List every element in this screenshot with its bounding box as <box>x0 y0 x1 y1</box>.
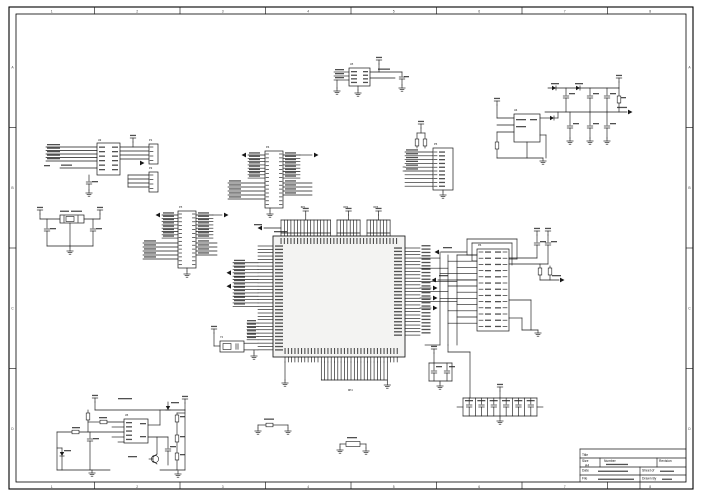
label-mark <box>247 337 256 338</box>
label-mark <box>394 294 402 295</box>
label-mark <box>275 292 283 293</box>
label-mark <box>234 293 245 294</box>
label-mark <box>422 322 431 323</box>
label-mark <box>406 161 418 162</box>
label-mark <box>330 238 331 244</box>
aux-connector-section: P5 <box>403 121 453 198</box>
offpage-arrow-icon <box>433 286 438 291</box>
label-mark <box>390 348 391 354</box>
label-mark <box>198 252 209 253</box>
label-mark <box>294 238 295 244</box>
label-mark <box>406 153 418 154</box>
label-mark <box>439 170 445 171</box>
interface-section: U2P1P2 <box>44 135 158 196</box>
label-mark <box>406 165 418 166</box>
label-mark <box>335 73 344 74</box>
label-mark <box>285 180 296 181</box>
label-mark <box>71 211 82 212</box>
label-mark <box>394 271 402 272</box>
label-mark <box>485 258 491 259</box>
audio-amp-section: U5 <box>57 395 188 477</box>
label-mark <box>284 238 285 244</box>
label-mark <box>234 287 245 288</box>
label-mark <box>373 238 374 244</box>
label-mark <box>495 276 501 277</box>
grid-col-label: 5 <box>393 9 395 13</box>
grid-col-label: 8 <box>649 9 651 13</box>
label-mark <box>495 301 501 302</box>
label-mark <box>660 471 674 472</box>
label-mark <box>490 400 498 401</box>
label-mark <box>422 312 431 313</box>
label-mark <box>394 291 402 292</box>
label-mark <box>97 207 103 208</box>
label-mark <box>363 71 368 72</box>
label-mark <box>422 302 431 303</box>
offpage-arrow-icon <box>227 270 232 275</box>
label-mark <box>249 156 260 157</box>
label-mark <box>422 292 431 293</box>
label-mark <box>182 396 188 397</box>
label-mark <box>485 313 491 314</box>
label-mark <box>126 430 132 431</box>
label-mark <box>341 348 342 354</box>
label-mark <box>394 261 402 262</box>
label-mark <box>112 151 118 152</box>
label-mark <box>374 348 375 354</box>
label-mark <box>275 319 283 320</box>
label-mark <box>422 305 431 306</box>
label-mark <box>324 348 325 354</box>
grid-col-label: 6 <box>478 485 480 489</box>
label-mark <box>304 238 305 244</box>
grid-col-label: 3 <box>222 485 224 489</box>
label-mark <box>363 78 368 79</box>
label-mark <box>37 207 43 208</box>
label-mark <box>99 147 105 148</box>
label-mark <box>573 123 579 124</box>
label-mark <box>422 329 431 330</box>
designator: RP2 <box>344 205 349 209</box>
grid-row-label: A <box>688 66 691 70</box>
label-mark <box>249 172 260 173</box>
designator: U3 <box>350 62 354 66</box>
label-mark <box>275 343 283 344</box>
label-mark <box>275 333 283 334</box>
label-mark <box>163 235 174 236</box>
offpage-arrow-icon <box>227 284 232 289</box>
label-mark <box>275 339 283 340</box>
label-mark <box>449 366 455 367</box>
label-mark <box>397 348 398 354</box>
misc-parts <box>255 419 369 455</box>
label-mark <box>234 297 245 298</box>
label-mark <box>50 228 56 229</box>
label-mark <box>140 423 146 424</box>
label-mark <box>99 169 105 170</box>
label-mark <box>285 188 296 189</box>
label-mark <box>439 275 448 276</box>
label-mark <box>394 321 402 322</box>
label-mark <box>285 348 286 354</box>
label-mark <box>394 247 402 248</box>
label-mark <box>317 238 318 244</box>
label-mark <box>370 348 371 354</box>
label-mark <box>485 320 491 321</box>
label-mark <box>47 148 60 149</box>
designator: P6 <box>478 243 482 247</box>
label-mark <box>318 348 319 354</box>
label-mark <box>485 264 491 265</box>
label-mark <box>516 119 526 120</box>
label-mark <box>422 309 431 310</box>
label-mark <box>502 400 510 401</box>
label-mark <box>92 395 98 396</box>
diode-icon <box>576 86 580 90</box>
designator: P4 <box>266 145 270 149</box>
label-mark <box>394 268 402 269</box>
label-mark <box>377 348 378 354</box>
label-mark <box>180 436 185 437</box>
label-mark <box>247 333 256 334</box>
grid-row-label: A <box>11 66 14 70</box>
label-mark <box>92 181 98 182</box>
label-mark <box>495 326 501 327</box>
label-mark <box>422 262 431 263</box>
label-mark <box>275 312 283 313</box>
grid-col-label: 1 <box>51 485 53 489</box>
label-mark <box>198 235 209 236</box>
schematic-sheet: 1122334455667788AABBCCDD U2P1P2 U3 U4 P3… <box>0 0 702 496</box>
label-mark <box>422 299 431 300</box>
label-mark <box>495 307 501 308</box>
label-mark <box>321 348 322 354</box>
label-mark <box>598 471 628 472</box>
label-mark <box>275 296 283 297</box>
label-mark <box>126 435 132 436</box>
label-mark <box>351 82 357 83</box>
grid-row-label: C <box>11 307 14 311</box>
label-mark <box>497 384 503 385</box>
label-mark <box>485 276 491 277</box>
label-mark <box>575 83 583 84</box>
label-mark <box>351 71 357 72</box>
label-mark <box>422 315 431 316</box>
label-mark <box>394 324 402 325</box>
label-mark <box>394 304 402 305</box>
label-mark <box>552 275 561 276</box>
label-mark <box>394 298 402 299</box>
label-mark <box>370 238 371 244</box>
label-mark <box>376 57 382 58</box>
label-mark <box>350 238 351 244</box>
label-mark <box>163 216 174 217</box>
label-mark <box>288 348 289 354</box>
label-mark <box>96 228 102 229</box>
label-mark <box>249 162 260 163</box>
label-mark <box>229 184 241 185</box>
label-mark <box>130 135 136 136</box>
label-mark <box>198 226 209 227</box>
label-mark <box>163 226 174 227</box>
label-mark <box>99 417 107 418</box>
label-mark <box>327 238 328 244</box>
label-mark <box>264 419 274 420</box>
label-mark <box>163 212 174 213</box>
label-mark <box>344 348 345 354</box>
label-mark <box>485 301 491 302</box>
label-mark <box>285 172 296 173</box>
label-mark <box>606 464 628 465</box>
label-mark <box>275 306 283 307</box>
label-mark <box>422 319 431 320</box>
label-mark <box>406 157 418 158</box>
label-mark <box>249 166 260 167</box>
label-mark <box>396 238 397 244</box>
label-mark <box>495 258 501 259</box>
label-mark <box>357 348 358 354</box>
label-mark <box>331 348 332 354</box>
oscillator-section: U3 <box>334 57 409 96</box>
label-mark <box>351 78 357 79</box>
label-mark <box>366 238 367 244</box>
label-mark <box>598 479 634 480</box>
label-mark <box>249 152 260 153</box>
label-mark <box>394 257 402 258</box>
label-mark <box>180 454 185 455</box>
designator: RP3 <box>374 205 379 209</box>
label-mark <box>422 252 431 253</box>
label-mark <box>545 228 551 229</box>
label-mark <box>61 165 72 166</box>
label-mark <box>144 256 156 257</box>
label-mark <box>485 270 491 271</box>
label-mark <box>72 427 80 428</box>
label-mark <box>247 327 256 328</box>
offpage-arrow-icon <box>435 250 440 255</box>
designator: P2 <box>149 166 153 170</box>
grid-col-label: 6 <box>478 9 480 13</box>
label-mark <box>234 266 245 267</box>
label-mark <box>281 238 282 244</box>
label-mark <box>170 446 176 447</box>
label-mark <box>234 260 245 261</box>
grid-col-label: 3 <box>222 9 224 13</box>
crystal-section <box>37 207 103 254</box>
label-mark <box>140 436 146 437</box>
label-mark <box>126 422 132 423</box>
label-mark <box>275 245 283 246</box>
label-mark <box>275 299 283 300</box>
offpage-arrow-icon <box>560 278 565 283</box>
label-mark <box>112 147 118 148</box>
label-mark <box>99 156 105 157</box>
label-mark <box>198 212 209 213</box>
label-mark <box>495 289 501 290</box>
label-mark <box>394 251 402 252</box>
label-mark <box>285 169 296 170</box>
label-mark <box>234 290 245 291</box>
label-mark <box>340 238 341 244</box>
label-mark <box>285 175 296 176</box>
label-mark <box>275 262 283 263</box>
offpage-arrow-icon <box>156 213 161 218</box>
label-mark <box>394 284 402 285</box>
drawn-label: Drawn By <box>642 476 657 480</box>
label-mark <box>593 123 599 124</box>
offpage-arrow-icon <box>140 161 145 166</box>
label-mark <box>275 252 283 253</box>
grid-row-label: B <box>11 186 14 190</box>
label-mark <box>314 238 315 244</box>
label-mark <box>516 126 526 127</box>
label-mark <box>247 320 256 321</box>
label-mark <box>431 346 437 347</box>
label-mark <box>422 332 431 333</box>
label-mark <box>198 222 209 223</box>
label-mark <box>47 151 60 152</box>
label-mark <box>291 348 292 354</box>
revision-label: Revision <box>659 459 672 463</box>
label-mark <box>144 252 156 253</box>
designator: Y2 <box>220 335 224 339</box>
label-mark <box>334 348 335 354</box>
label-mark <box>404 76 409 77</box>
label-mark <box>285 152 296 153</box>
label-mark <box>551 241 557 242</box>
label-mark <box>384 348 385 354</box>
grid-col-label: 2 <box>136 9 138 13</box>
label-mark <box>356 238 357 244</box>
label-mark <box>198 216 209 217</box>
label-mark <box>229 188 241 189</box>
label-mark <box>422 265 431 266</box>
label-mark <box>254 224 262 225</box>
label-mark <box>494 98 500 99</box>
label-mark <box>275 349 283 350</box>
label-mark <box>351 348 352 354</box>
label-mark <box>367 348 368 354</box>
diode-icon <box>552 86 556 90</box>
label-mark <box>300 238 301 244</box>
label-mark <box>275 266 283 267</box>
grid-col-label: 2 <box>136 485 138 489</box>
offpage-arrow-icon <box>314 153 319 158</box>
label-mark <box>171 402 179 403</box>
label-mark <box>621 97 626 98</box>
label-mark <box>617 107 627 108</box>
label-mark <box>363 75 368 76</box>
label-mark <box>485 326 491 327</box>
label-mark <box>439 163 445 164</box>
label-mark <box>439 174 445 175</box>
grid-col-label: 4 <box>307 9 309 13</box>
label-mark <box>380 348 381 354</box>
label-mark <box>351 75 357 76</box>
label-mark <box>163 229 174 230</box>
grid-col-label: 7 <box>564 485 566 489</box>
label-mark <box>180 416 185 417</box>
grid-col-label: 4 <box>307 485 309 489</box>
label-mark <box>389 238 390 244</box>
label-mark <box>422 248 431 249</box>
label-mark <box>275 259 283 260</box>
label-mark <box>337 238 338 244</box>
label-mark <box>422 279 431 280</box>
label-mark <box>99 160 105 161</box>
offpage-arrow-icon <box>242 153 247 158</box>
label-mark <box>163 222 174 223</box>
designator: RP1 <box>301 205 306 209</box>
label-mark <box>44 165 50 166</box>
label-mark <box>275 309 283 310</box>
label-mark <box>360 348 361 354</box>
label-mark <box>285 162 296 163</box>
label-mark <box>112 160 118 161</box>
label-mark <box>394 328 402 329</box>
label-mark <box>662 479 672 480</box>
label-mark <box>275 286 283 287</box>
grid-row-label: D <box>11 427 14 431</box>
label-mark <box>439 182 445 183</box>
label-mark <box>285 159 296 160</box>
label-mark <box>307 238 308 244</box>
label-mark <box>439 167 445 168</box>
label-mark <box>93 438 99 439</box>
label-mark <box>364 348 365 354</box>
label-mark <box>343 238 344 244</box>
label-mark <box>64 450 71 451</box>
label-mark <box>393 348 394 354</box>
label-mark <box>249 175 260 176</box>
label-mark <box>118 398 132 399</box>
offpage-arrow-icon <box>224 213 229 218</box>
label-mark <box>360 238 361 244</box>
title-block: Title Size A4 Number Revision Date Sheet… <box>580 449 686 489</box>
label-mark <box>112 156 118 157</box>
label-mark <box>610 93 616 94</box>
label-mark <box>380 238 381 244</box>
grid-row-label: D <box>688 427 691 431</box>
label-mark <box>112 169 118 170</box>
label-mark <box>406 149 418 150</box>
label-mark <box>439 155 445 156</box>
label-mark <box>128 456 137 457</box>
label-mark <box>394 335 402 336</box>
label-mark <box>163 232 174 233</box>
label-mark <box>569 93 575 94</box>
label-mark <box>485 282 491 283</box>
label-mark <box>495 270 501 271</box>
label-mark <box>527 400 535 401</box>
label-mark <box>234 273 245 274</box>
label-mark <box>285 184 296 185</box>
label-mark <box>394 308 402 309</box>
label-mark <box>229 192 241 193</box>
label-mark <box>234 283 245 284</box>
label-mark <box>285 156 296 157</box>
label-mark <box>514 400 522 401</box>
label-mark <box>275 255 283 256</box>
label-mark <box>354 348 355 354</box>
label-mark <box>163 219 174 220</box>
label-mark <box>422 269 431 270</box>
label-mark <box>422 259 431 260</box>
label-mark <box>394 264 402 265</box>
label-mark <box>422 326 431 327</box>
label-mark <box>275 326 283 327</box>
label-mark <box>249 169 260 170</box>
